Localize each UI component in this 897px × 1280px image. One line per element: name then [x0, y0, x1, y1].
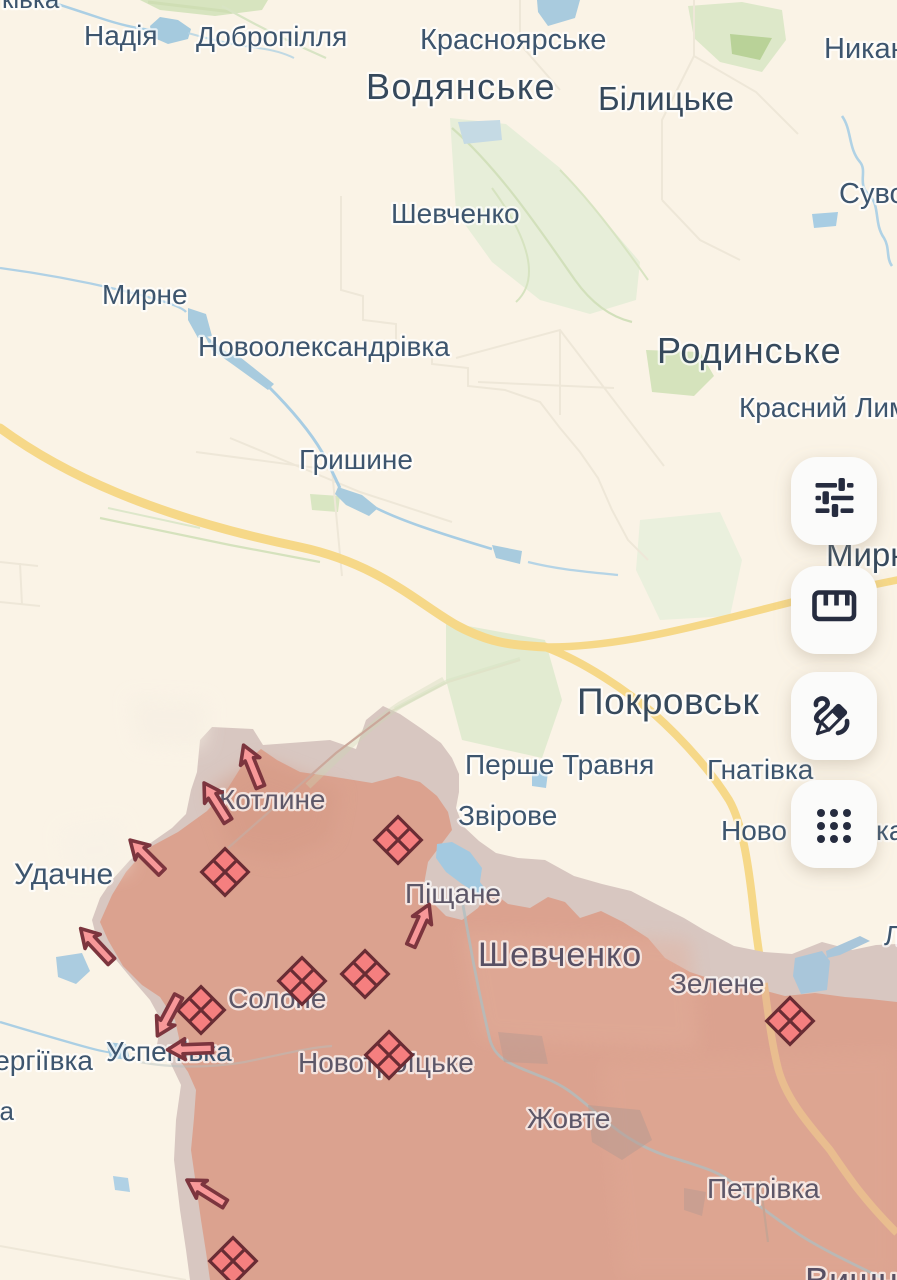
svg-text:ва: ва — [0, 1096, 15, 1126]
svg-text:Зелене: Зелене — [670, 968, 765, 999]
svg-text:ка: ка — [876, 815, 897, 846]
svg-text:Котлине: Котлине — [219, 784, 326, 815]
svg-text:Добропілля: Добропілля — [196, 21, 347, 52]
svg-text:Родинське: Родинське — [657, 330, 842, 371]
svg-text:Звірове: Звірове — [458, 800, 557, 831]
svg-text:Жовте: Жовте — [527, 1103, 610, 1134]
svg-text:Надія: Надія — [84, 20, 158, 51]
svg-text:ківка: ківка — [2, 0, 60, 14]
svg-text:Петрівка: Петрівка — [707, 1173, 820, 1204]
svg-text:Ново: Ново — [721, 815, 787, 846]
svg-text:Сергіївка: Сергіївка — [0, 1045, 93, 1076]
svg-text:Лисівка: Лисівка — [884, 920, 897, 951]
svg-text:Перше Травня: Перше Травня — [465, 749, 654, 780]
svg-text:Красний Лиман: Красний Лиман — [739, 392, 897, 423]
svg-text:Суворове: Суворове — [839, 178, 897, 210]
svg-text:Мирне: Мирне — [102, 279, 188, 310]
svg-text:Шевченко: Шевченко — [478, 936, 642, 974]
svg-text:Покровськ: Покровськ — [577, 681, 760, 722]
svg-text:Піщане: Піщане — [405, 878, 501, 909]
svg-text:Новоолександрівка: Новоолександрівка — [198, 331, 450, 362]
svg-text:Шевченко: Шевченко — [391, 198, 520, 229]
svg-text:Гнатівка: Гнатівка — [707, 754, 814, 785]
svg-text:Гришине: Гришине — [299, 444, 413, 475]
svg-text:Никанорівка: Никанорівка — [824, 33, 897, 65]
svg-text:Удачне: Удачне — [14, 858, 113, 891]
svg-text:Вишневе: Вишневе — [805, 1260, 897, 1280]
svg-text:Білицьке: Білицьке — [598, 80, 734, 117]
svg-text:Красноярське: Красноярське — [420, 24, 606, 56]
svg-text:Водянське: Водянське — [366, 66, 556, 107]
